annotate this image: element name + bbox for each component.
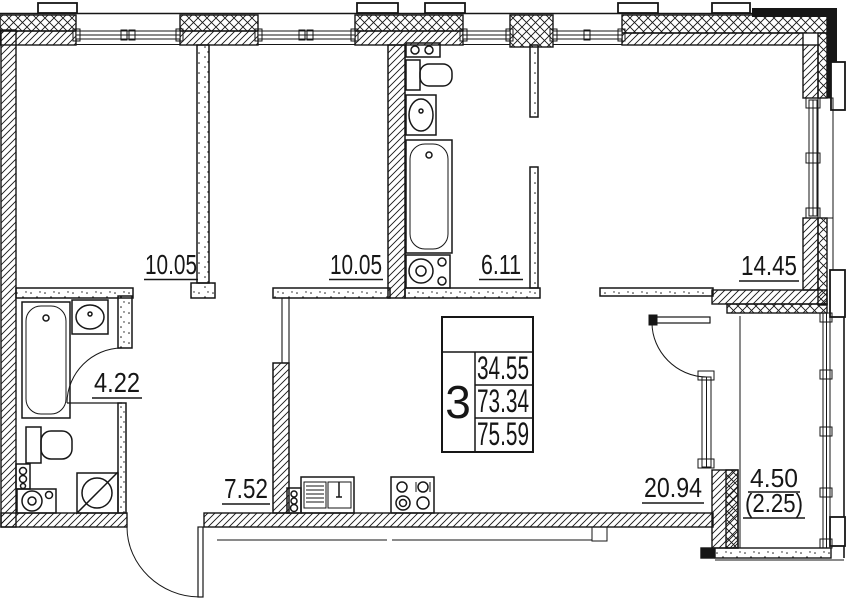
room-label-balcony-reduced: (2.25) — [745, 488, 803, 518]
room-label-bedroom-2: 10.05 — [330, 249, 382, 280]
room-label-hallway: 7.52 — [224, 473, 268, 504]
stamp-living-area: 34.55 — [477, 350, 529, 386]
room-label-bathroom-ensuite: 6.11 — [481, 249, 521, 280]
room-label-living-kitchen: 20.94 — [644, 472, 702, 503]
floor-plan: 3 34.55 73.34 75.59 10.05 10.05 6.11 14.… — [0, 0, 847, 598]
floor-plan-page: 3 34.55 73.34 75.59 10.05 10.05 6.11 14.… — [0, 0, 847, 598]
stamp-room-count: 3 — [445, 376, 471, 428]
stamp-total-area: 75.59 — [477, 416, 529, 452]
room-label-bedroom-3: 14.45 — [741, 250, 797, 281]
room-label-bedroom-1: 10.05 — [145, 249, 197, 280]
room-label-bathroom: 4.22 — [94, 367, 140, 398]
stamp-area: 73.34 — [477, 383, 529, 419]
